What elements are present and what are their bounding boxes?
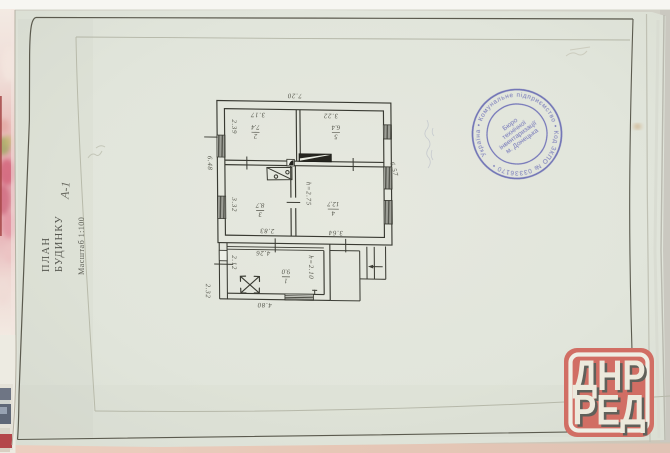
- svg-text:РЕД: РЕД: [573, 387, 646, 435]
- svg-text:4.80: 4.80: [257, 301, 272, 308]
- svg-text:3.17: 3.17: [250, 111, 266, 118]
- svg-text:6.4: 6.4: [331, 123, 340, 130]
- svg-text:3.64: 3.64: [328, 229, 344, 236]
- svg-text:2.83: 2.83: [260, 227, 275, 234]
- svg-text:А-1: А-1: [57, 181, 72, 200]
- svg-text:2.32: 2.32: [204, 284, 211, 299]
- svg-text:Масштаб 1:100: Масштаб 1:100: [77, 217, 86, 275]
- svg-text:12.7: 12.7: [327, 200, 340, 207]
- svg-text:4.26: 4.26: [256, 249, 271, 256]
- svg-text:8.7: 8.7: [255, 201, 264, 208]
- svg-text:2.39: 2.39: [230, 119, 237, 134]
- svg-text:1: 1: [284, 277, 287, 284]
- svg-text:7.4: 7.4: [251, 123, 260, 130]
- svg-text:9.0: 9.0: [281, 268, 290, 275]
- svg-text:3.22: 3.22: [323, 112, 339, 119]
- svg-text:БУДИНКУ: БУДИНКУ: [54, 215, 65, 272]
- svg-text:h=2.75: h=2.75: [305, 182, 312, 206]
- svg-text:3: 3: [258, 210, 263, 217]
- svg-text:3.32: 3.32: [230, 196, 237, 212]
- svg-text:h=2.10: h=2.10: [307, 255, 314, 279]
- svg-text:6.48: 6.48: [206, 156, 213, 171]
- svg-text:ПЛАН: ПЛАН: [41, 237, 52, 272]
- svg-text:7.20: 7.20: [287, 92, 302, 99]
- svg-text:2.12: 2.12: [230, 255, 237, 270]
